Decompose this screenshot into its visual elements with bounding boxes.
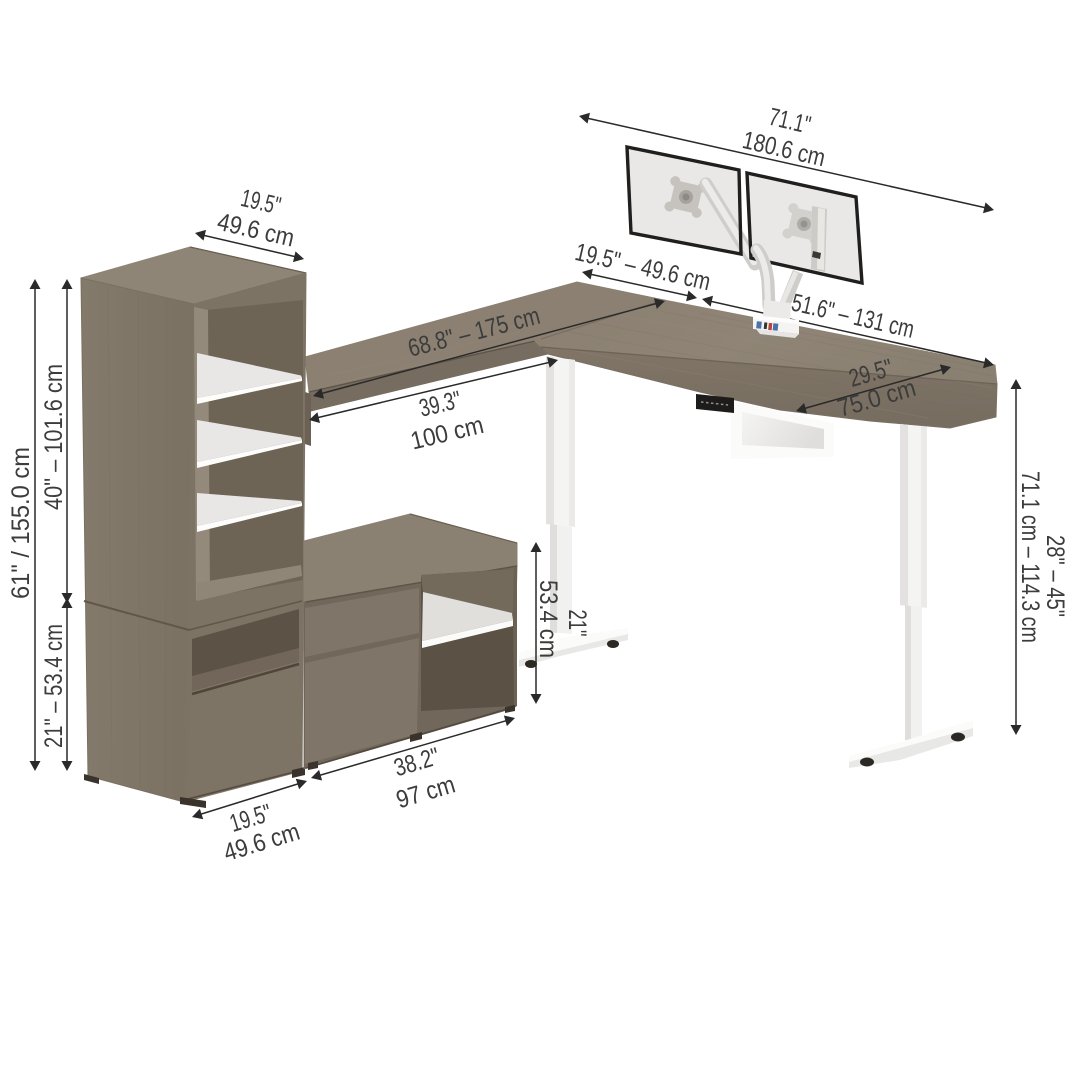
svg-text:40" – 101.6 cm: 40" – 101.6 cm	[40, 364, 68, 510]
svg-text:21": 21"	[563, 610, 591, 637]
svg-text:28" – 45": 28" – 45"	[1041, 535, 1069, 617]
svg-text:71.1 cm – 114.3 cm: 71.1 cm – 114.3 cm	[1016, 471, 1044, 643]
svg-text:61" / 155.0 cm: 61" / 155.0 cm	[7, 447, 35, 599]
svg-text:21" – 53.4 cm: 21" – 53.4 cm	[40, 624, 68, 748]
svg-text:53.4 cm: 53.4 cm	[534, 580, 562, 658]
